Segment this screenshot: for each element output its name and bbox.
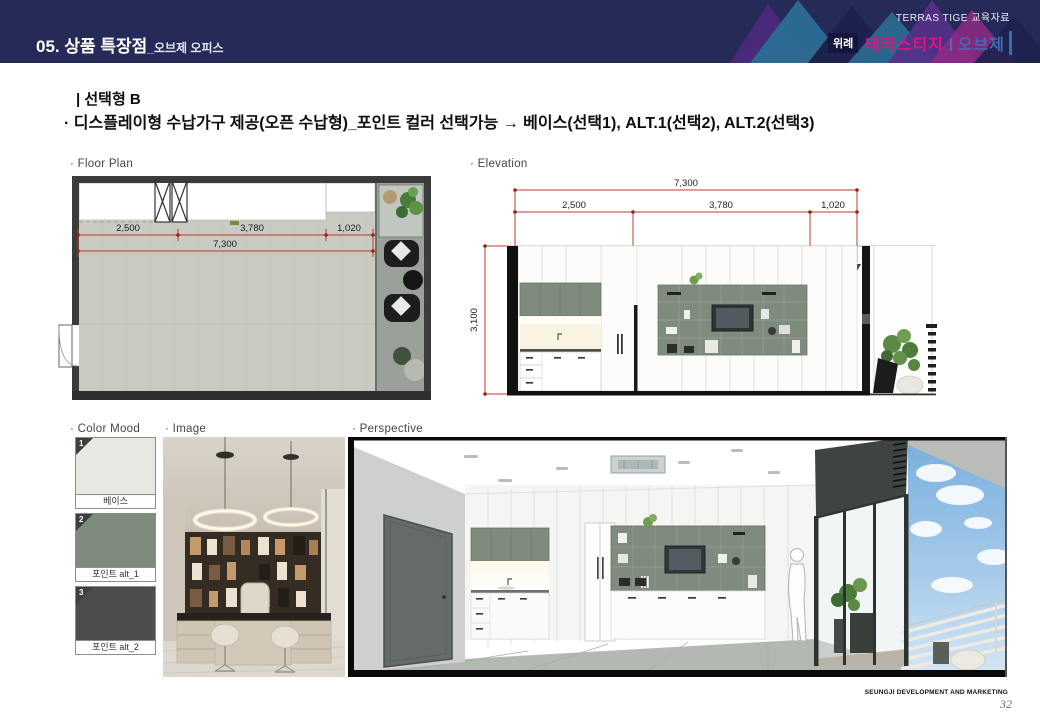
image-label: · Image [165, 423, 206, 435]
elev-niche-divider [634, 305, 638, 395]
persp-display-shelf [611, 514, 765, 639]
elev-terrace-zone [870, 246, 937, 395]
wall-cabinet-strip [79, 183, 326, 220]
green-accent [230, 221, 239, 225]
terrace-planter [933, 642, 949, 664]
presentation-slide: 05. 상품 특장점_오브제 오피스 TERRAS TIGE 교육자료 위례 테… [0, 0, 1040, 720]
terrace-pouf [951, 650, 985, 670]
plan-dim-7300: 7,300 [213, 239, 237, 250]
floor-plan-label: · Floor Plan [70, 158, 133, 170]
page-title-main: 05. 상품 특장점 [36, 37, 147, 56]
header-bar: 05. 상품 특장점_오브제 오피스 TERRAS TIGE 교육자료 위례 테… [0, 0, 1040, 63]
frame-left [348, 437, 354, 677]
wall-top [72, 176, 431, 183]
swatch-name: 포인트 alt_1 [76, 567, 155, 581]
reference-interior-photo [163, 437, 345, 677]
tall-cabinet-fridge [585, 523, 615, 641]
swatch-point-alt1: 2 포인트 alt_1 [75, 513, 156, 582]
frame-bottom [348, 670, 1007, 677]
planter-pot [383, 190, 397, 204]
option-type-title: | 선택형 B [76, 88, 141, 109]
frame-right [1005, 437, 1007, 677]
ac-unit [611, 456, 665, 473]
perspective-label: · Perspective [352, 423, 423, 435]
page-number: 32 [1000, 697, 1012, 712]
elev-dim-3100: 3,100 [469, 308, 480, 332]
color-mood-label: · Color Mood [70, 423, 140, 435]
page-title-sub: _오브제 오피스 [147, 41, 223, 55]
perspective-rendering [348, 437, 1007, 677]
swatch-name: 베이스 [76, 494, 155, 508]
brand-suffix-text: 오브제 [958, 31, 1012, 55]
desk [177, 613, 331, 665]
elev-baseline [507, 391, 870, 396]
entry-door [384, 515, 452, 667]
company-credit: SEUNGJI DEVELOPMENT AND MARKETING [860, 689, 1008, 696]
swatch-number: 2 [79, 515, 83, 524]
page-title: 05. 상품 특장점_오브제 오피스 [36, 32, 224, 57]
brand-name-text: 테라스티지 [865, 31, 944, 55]
elev-display-shelf [658, 273, 807, 356]
swatch-point-alt2: 3 포인트 alt_2 [75, 586, 156, 655]
persp-kitchenette [471, 528, 549, 639]
brand-separator: | [949, 35, 953, 51]
swatch-number: 3 [79, 588, 83, 597]
floor-plan-drawing: 2,500 3,780 1,020 7,300 [58, 174, 432, 402]
glass-doors [814, 437, 909, 666]
wall-right [424, 176, 431, 400]
swatch-number: 1 [79, 439, 83, 448]
brand-material-label: TERRAS TIGE 교육자료 [896, 9, 1010, 24]
elev-dim-3780: 3,780 [709, 200, 733, 211]
wall-cabinet-strip-2 [326, 183, 375, 212]
brand-prefix-badge: 위례 [828, 33, 858, 53]
elev-dim-1020: 1,020 [821, 200, 845, 211]
elev-baseline-thin [870, 394, 936, 396]
elevation-drawing: 7,300 2,500 3,780 1,020 3,100 [462, 168, 940, 400]
elev-left-post [507, 246, 518, 395]
swatch-base: 1 베이스 [75, 437, 156, 509]
wall-bottom [72, 391, 431, 400]
plan-dim-2500: 2,500 [116, 223, 140, 234]
terrace-stool-light [404, 359, 426, 381]
frame-top [348, 437, 1007, 441]
elev-dim-7300: 7,300 [674, 178, 698, 189]
elev-dim-2500: 2,500 [562, 200, 586, 211]
elev-right-post-band [862, 314, 870, 324]
option-description: · 디스플레이형 수납가구 제공(오픈 수납형)_포인트 컬러 선택가능 → 베… [64, 109, 814, 133]
door-swing [59, 325, 79, 367]
swatch-name: 포인트 alt_2 [76, 640, 155, 654]
brand-logo: 위례 테라스티지 | 오브제 [828, 31, 1012, 55]
plan-dim-1020: 1,020 [337, 223, 361, 234]
plan-dim-3780: 3,780 [240, 223, 264, 234]
